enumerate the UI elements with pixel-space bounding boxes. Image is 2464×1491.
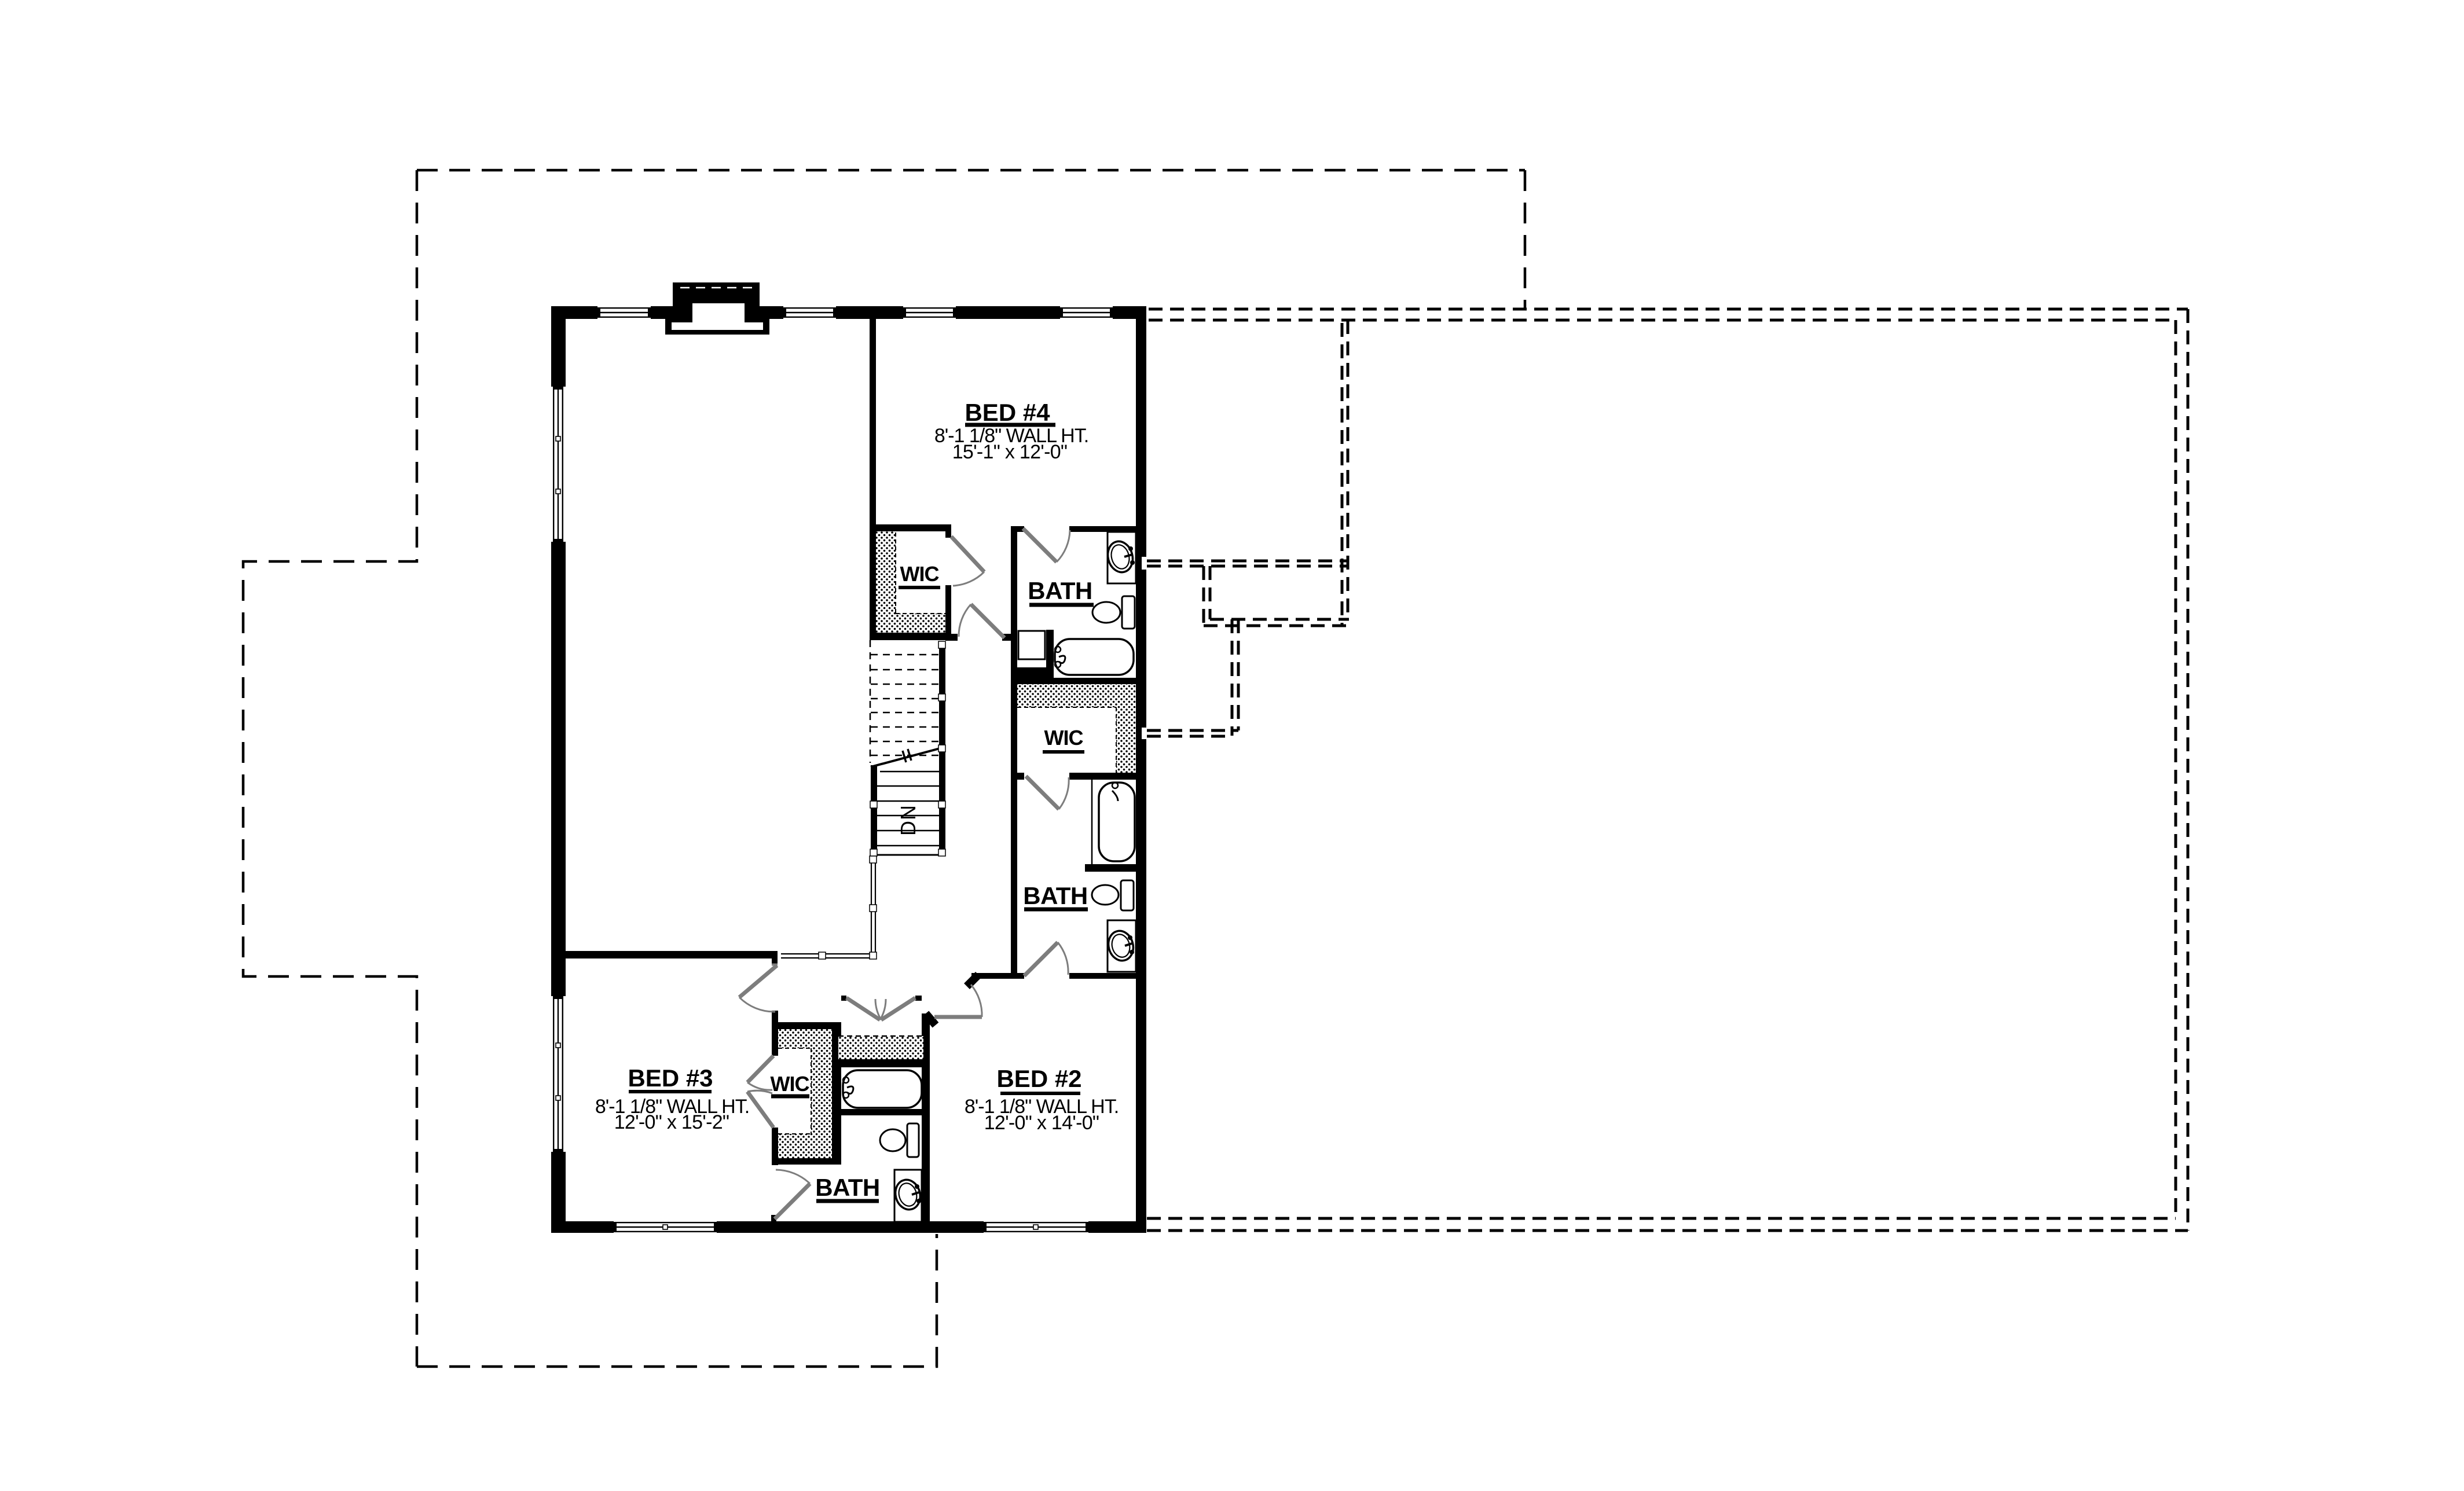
svg-text:12'-0" x 15'-2": 12'-0" x 15'-2"	[614, 1111, 729, 1133]
svg-text:WIC: WIC	[771, 1072, 810, 1096]
svg-text:WIC: WIC	[900, 562, 940, 586]
svg-text:12'-0" x 14'-0": 12'-0" x 14'-0"	[984, 1112, 1099, 1134]
svg-text:BATH: BATH	[1023, 882, 1088, 909]
svg-text:BATH: BATH	[1028, 577, 1092, 604]
svg-text:BATH: BATH	[815, 1174, 880, 1201]
svg-text:DN: DN	[896, 805, 920, 836]
svg-text:WIC: WIC	[1044, 726, 1084, 750]
svg-text:15'-1" x 12'-0": 15'-1" x 12'-0"	[952, 441, 1068, 463]
svg-text:BED #3: BED #3	[628, 1064, 713, 1092]
svg-text:BED #4: BED #4	[965, 399, 1050, 426]
svg-text:BED #2: BED #2	[996, 1065, 1081, 1092]
